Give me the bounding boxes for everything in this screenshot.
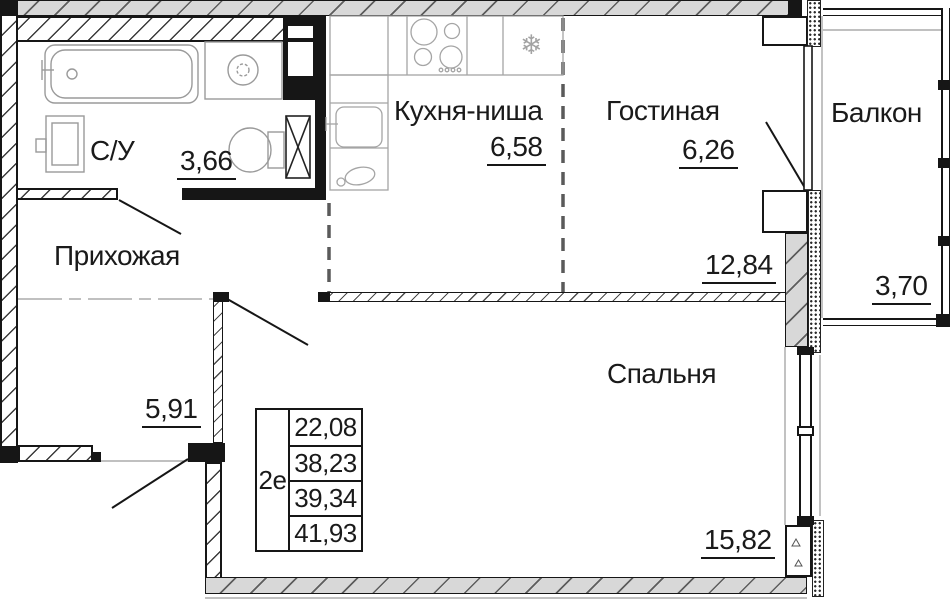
bedroom-window-top-connector (797, 347, 814, 355)
room-bathroom-label: С/У (90, 135, 134, 167)
floor-plan: С/У 3,66 Прихожая 5,91 Кухня-ниша 6,58 Г… (0, 0, 951, 600)
room-kitchen-label: Кухня-ниша (394, 95, 542, 127)
apartment-info-table: 2е 22,08 38,23 39,34 41,93 (255, 408, 363, 552)
kettle-icon (337, 165, 376, 188)
vent-duct-icon (286, 116, 310, 178)
concrete-marks (792, 539, 802, 566)
apartment-area-cell: 22,08 (290, 410, 361, 445)
room-kitchen-area: 6,58 (487, 131, 546, 166)
balcony-post-3 (938, 236, 950, 246)
kitchen-sink-icon (326, 107, 382, 147)
bedroom-window-bottom-connector (797, 516, 814, 525)
room-bedroom-label: Спальня (607, 358, 716, 390)
room-hallway-label: Прихожая (54, 240, 180, 272)
balcony-post-1 (938, 80, 950, 90)
balcony-post-corner (936, 314, 950, 327)
bathroom-sink-icon (36, 116, 84, 172)
apartment-type-cell: 2е (257, 410, 290, 550)
room-living-total-area: 12,84 (702, 249, 776, 284)
door-swing-bathroom (119, 200, 181, 234)
door-swing-balcony (766, 122, 805, 188)
room-balcony-label: Балкон (831, 97, 922, 129)
room-living-label: Гостиная (606, 95, 720, 127)
apartment-area-cell: 41,93 (290, 515, 361, 550)
washing-machine-icon (205, 42, 282, 99)
snowflake-icon: ❄ (520, 30, 543, 61)
room-living-area: 6,26 (679, 134, 738, 169)
bedroom-window-mullion (797, 426, 814, 436)
door-swing-bedroom (222, 296, 308, 345)
apartment-area-cell: 39,34 (290, 480, 361, 515)
bathtub-icon (42, 45, 198, 103)
room-hallway-area: 5,91 (142, 393, 201, 428)
vent-shaft-icon (283, 18, 319, 100)
door-swing-entrance (112, 459, 188, 508)
apartment-area-cell: 38,23 (290, 445, 361, 480)
balcony-door-leaf (804, 46, 812, 190)
balcony-post-2 (938, 158, 950, 168)
toilet-icon (229, 128, 284, 172)
room-bathroom-area: 3,66 (177, 145, 236, 180)
room-bedroom-area: 15,82 (701, 524, 775, 559)
bedroom-window (799, 347, 812, 525)
room-balcony-area: 3,70 (872, 270, 931, 305)
stove-icon (411, 19, 462, 72)
